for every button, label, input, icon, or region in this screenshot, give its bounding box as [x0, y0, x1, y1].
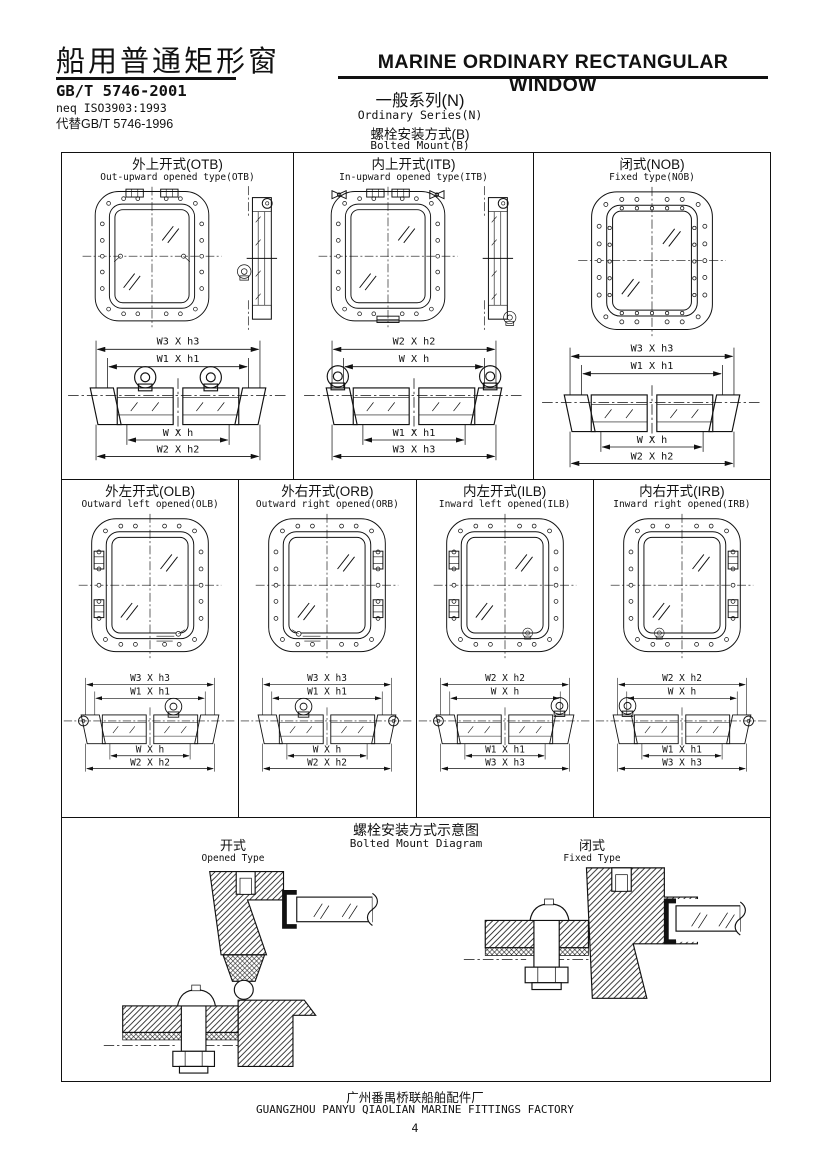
nob-cross-section-drawing: W3 X h3 W1 X h1 W X h W2 X h2: [541, 339, 763, 474]
table-row-2: 外左开式(OLB) Outward left opened(OLB) W3 X …: [62, 480, 770, 818]
standard-number: GB/T 5746-2001: [56, 82, 187, 100]
type-title-en: Out-upward opened type(OTB): [100, 173, 254, 184]
type-cell-itb: 内上开式(ITB) In-upward opened type(ITB): [294, 153, 534, 479]
type-title-cn: 外左开式(OLB): [81, 484, 218, 500]
dimension-label: W2 X h2: [156, 445, 199, 456]
type-title-cn: 外上开式(OTB): [100, 157, 254, 173]
series-label-en: Ordinary Series(N): [260, 108, 580, 122]
dimension-label: W1 X h1: [130, 687, 170, 698]
orb-cross-section-drawing: W3 X h3 W1 X h1 W X h W2 X h2: [240, 671, 414, 777]
orb-front-view-drawing: [246, 513, 408, 659]
otb-cross-section-drawing: W3 X h3 W1 X h1 W X h W2 X h2: [67, 332, 289, 467]
type-cell-irb: 内右开式(IRB) Inward right opened(IRB) W2 X …: [594, 480, 770, 817]
table-row-3-diagram: 螺栓安装方式示意图 Bolted Mount Diagram 开式 Opened…: [62, 818, 770, 1078]
dimension-label: W2 X h2: [631, 452, 674, 463]
olb-cross-section-drawing: W3 X h3 W1 X h1 W X h W2 X h2: [63, 671, 237, 777]
type-cell-olb: 外左开式(OLB) Outward left opened(OLB) W3 X …: [62, 480, 239, 817]
itb-front-view-drawing: [309, 186, 467, 328]
type-cell-ilb: 内左开式(ILB) Inward left opened(ILB) W2 X h…: [417, 480, 594, 817]
dimension-label: W3 X h3: [307, 673, 347, 684]
dimension-label: W1 X h1: [156, 354, 199, 365]
dimension-label: W3 X h3: [662, 758, 702, 769]
type-title-en: In-upward opened type(ITB): [339, 173, 488, 184]
types-table: 外上开式(OTB) Out-upward opened type(OTB): [61, 152, 771, 1082]
dimension-label: W2 X h2: [307, 758, 347, 769]
title-en-underline: [338, 76, 768, 79]
fixed-type-label: 闭式 Fixed Type: [482, 839, 702, 865]
dimension-label: W1 X h1: [662, 745, 702, 756]
dimension-label: W3 X h3: [631, 344, 674, 355]
dimension-label: W X h: [162, 429, 192, 440]
nob-front-view-drawing: [568, 186, 736, 337]
factory-name-en: GUANGZHOU PANYU QIAOLIAN MARINE FITTINGS…: [0, 1103, 830, 1116]
opened-type-label-cn: 开式: [123, 839, 343, 854]
type-title-en: Outward right opened(ORB): [256, 500, 399, 511]
dimension-label: W3 X h3: [485, 758, 525, 769]
table-row-1: 外上开式(OTB) Out-upward opened type(OTB): [62, 153, 770, 480]
standard-replaces: 代替GB/T 5746-1996: [56, 113, 173, 132]
dimension-label: W X h: [398, 354, 428, 365]
dimension-label: W X h: [668, 687, 696, 698]
dimension-label: W2 X h2: [662, 673, 702, 684]
irb-front-view-drawing: [601, 513, 763, 659]
page-number: 4: [0, 1121, 830, 1135]
type-title-cn: 内右开式(IRB): [613, 484, 750, 500]
dimension-label: W3 X h3: [156, 337, 199, 348]
otb-side-section-drawing: [236, 186, 282, 330]
opened-type-label: 开式 Opened Type: [123, 839, 343, 865]
dimension-label: W3 X h3: [130, 673, 170, 684]
type-cell-otb: 外上开式(OTB) Out-upward opened type(OTB): [62, 153, 294, 479]
type-cell-nob: 闭式(NOB) Fixed type(NOB): [534, 153, 770, 479]
dimension-label: W X h: [136, 745, 164, 756]
opened-type-section-drawing: [98, 864, 382, 1074]
dimension-label: W X h: [637, 436, 667, 447]
dimension-label: W1 X h1: [307, 687, 347, 698]
ilb-front-view-drawing: [424, 513, 586, 659]
title-cn-underline: [56, 77, 236, 80]
otb-front-view-drawing: [73, 186, 231, 328]
dimension-label: W1 X h1: [631, 361, 674, 372]
itb-side-section-drawing: [472, 186, 518, 330]
type-title-cn: 内上开式(ITB): [339, 157, 488, 173]
irb-cross-section-drawing: W2 X h2 W X h W1 X h1 W3 X h3: [595, 671, 769, 777]
type-title-en: Inward left opened(ILB): [439, 500, 571, 511]
mount-label-en: Bolted Mount(B): [260, 139, 580, 152]
fixed-type-label-cn: 闭式: [482, 839, 702, 854]
type-title-en: Inward right opened(IRB): [613, 500, 750, 511]
type-title-cn: 内左开式(ILB): [439, 484, 571, 500]
document-page: 船用普通矩形窗 MARINE ORDINARY RECTANGULAR WIND…: [0, 0, 830, 1175]
dimension-label: W1 X h1: [392, 429, 435, 440]
itb-cross-section-drawing: W2 X h2 W X h W1 X h1 W3 X h3: [303, 332, 525, 467]
dimension-label: W2 X h2: [130, 758, 170, 769]
dimension-label: W X h: [490, 687, 518, 698]
type-title-en: Fixed type(NOB): [609, 173, 695, 184]
dimension-label: W2 X h2: [485, 673, 525, 684]
page-title-cn: 船用普通矩形窗: [56, 38, 280, 80]
dimension-label: W2 X h2: [392, 337, 435, 348]
dimension-label: W X h: [313, 745, 341, 756]
dimension-label: W1 X h1: [485, 745, 525, 756]
type-title-cn: 外右开式(ORB): [256, 484, 399, 500]
dimension-label: W3 X h3: [392, 445, 435, 456]
ilb-cross-section-drawing: W2 X h2 W X h W1 X h1 W3 X h3: [418, 671, 592, 777]
type-cell-orb: 外右开式(ORB) Outward right opened(ORB) W3 X…: [239, 480, 416, 817]
olb-front-view-drawing: [69, 513, 231, 659]
type-title-en: Outward left opened(OLB): [81, 500, 218, 511]
type-title-cn: 闭式(NOB): [609, 157, 695, 173]
fixed-type-section-drawing: [458, 862, 750, 1010]
